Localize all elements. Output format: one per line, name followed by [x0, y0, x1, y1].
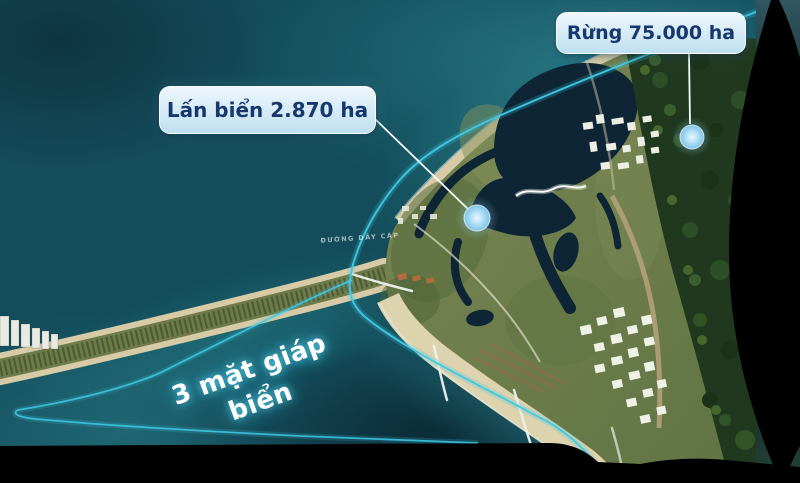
forest-marker	[672, 117, 712, 157]
reclaim-marker	[455, 196, 499, 240]
reclaim-callout-label: Lấn biển 2.870 ha	[167, 98, 368, 122]
infographic-map: ĐƯỜNG DÂY CÁP Lấn biển 2.870 ha Rừng 75.…	[0, 0, 800, 483]
forest-connector-line	[689, 53, 690, 124]
forest-callout-label: Rừng 75.000 ha	[567, 22, 735, 44]
forest-callout: Rừng 75.000 ha	[556, 12, 746, 54]
reclaim-callout: Lấn biển 2.870 ha	[159, 86, 376, 134]
map-illustration	[0, 0, 800, 483]
